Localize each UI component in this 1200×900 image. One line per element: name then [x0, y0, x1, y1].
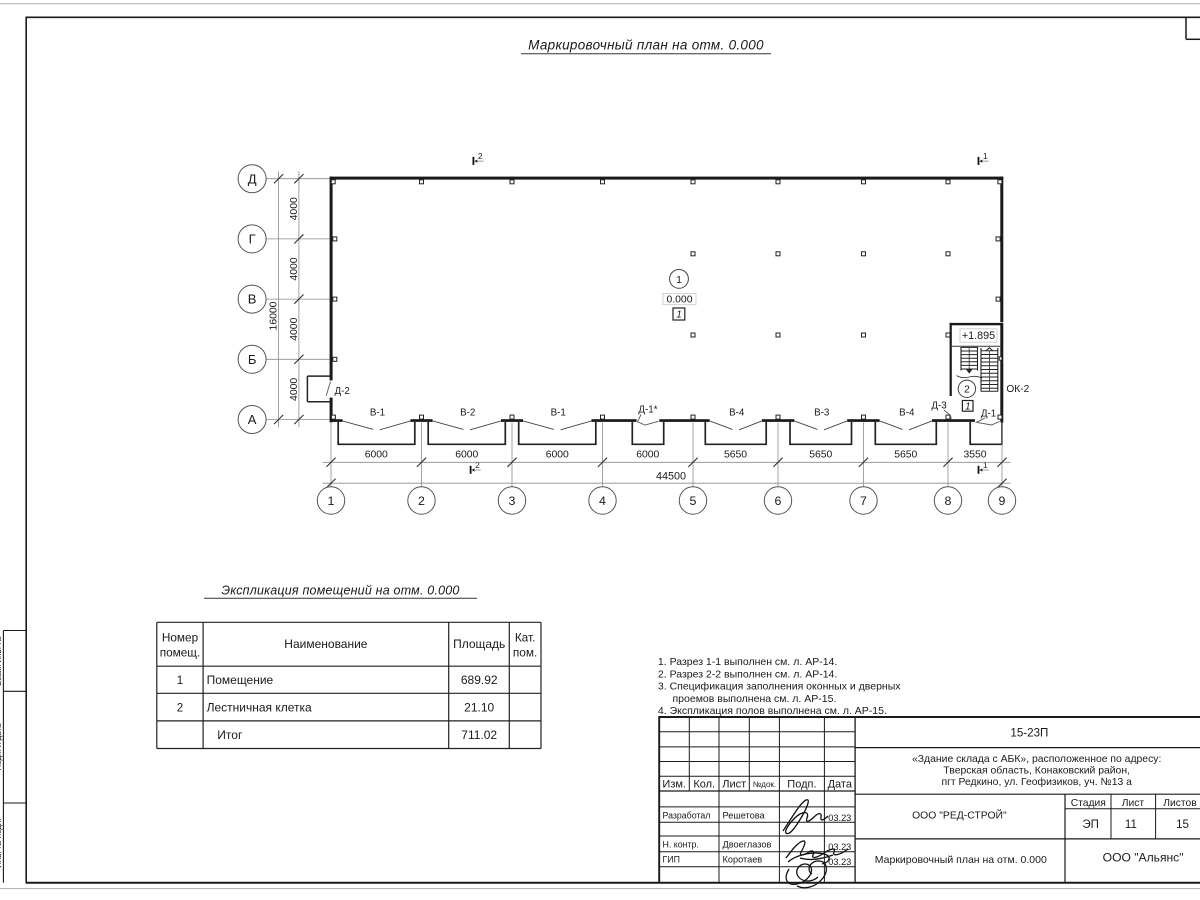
svg-text:689.92: 689.92: [461, 673, 498, 687]
svg-text:3: 3: [509, 494, 516, 508]
svg-text:помещ.: помещ.: [160, 646, 201, 660]
svg-text:В-3: В-3: [814, 408, 830, 419]
svg-text:Лестничная клетка: Лестничная клетка: [207, 701, 312, 715]
svg-text:4000: 4000: [289, 257, 300, 280]
svg-text:пом.: пом.: [513, 646, 537, 660]
svg-text:Маркировочный план на отм. 0.0: Маркировочный план на отм. 0.000: [875, 854, 1047, 866]
svg-text:15: 15: [1176, 819, 1189, 831]
svg-text:ГИП: ГИП: [663, 855, 680, 865]
svg-text:Д-1*: Д-1*: [638, 405, 657, 416]
svg-text:16000: 16000: [269, 301, 280, 330]
svg-text:6000: 6000: [455, 450, 478, 461]
svg-text:4000: 4000: [289, 378, 300, 401]
svg-text:4000: 4000: [289, 317, 300, 340]
svg-text:В-4: В-4: [729, 408, 745, 419]
svg-text:Инв. № подл.: Инв. № подл.: [0, 818, 3, 868]
svg-text:Площадь: Площадь: [453, 637, 505, 651]
svg-text:Н. контр.: Н. контр.: [663, 840, 699, 850]
svg-text:1: 1: [983, 151, 988, 161]
svg-text:Экспликация помещений на отм.: Экспликация помещений на отм. 0.000: [221, 584, 459, 598]
svg-text:03.23: 03.23: [828, 857, 851, 867]
svg-text:Кат.: Кат.: [515, 631, 536, 645]
svg-text:1: 1: [676, 310, 682, 321]
svg-text:5650: 5650: [809, 450, 832, 461]
svg-text:0.000: 0.000: [666, 294, 692, 305]
svg-text:2: 2: [964, 384, 970, 396]
svg-text:Г: Г: [249, 232, 256, 247]
svg-text:Маркировочный план на отм. 0.0: Маркировочный план на отм. 0.000: [528, 38, 764, 53]
svg-text:«Здание склада с АБК», располо: «Здание склада с АБК», расположенное по …: [912, 754, 1161, 765]
svg-text:Б: Б: [248, 352, 257, 367]
svg-text:2: 2: [418, 494, 425, 508]
svg-text:6000: 6000: [636, 450, 659, 461]
svg-text:Помещение: Помещение: [207, 673, 274, 687]
svg-text:9: 9: [999, 494, 1006, 508]
svg-text:1: 1: [983, 460, 988, 470]
svg-text:Решетова: Решетова: [723, 810, 766, 820]
svg-text:8: 8: [945, 494, 952, 508]
svg-text:2: 2: [475, 460, 480, 470]
svg-text:пгт Редкино, ул. Геофизиков, у: пгт Редкино, ул. Геофизиков, уч. №13 а: [941, 776, 1132, 788]
svg-text:ОК-2: ОК-2: [1006, 384, 1029, 395]
svg-text:В-4: В-4: [899, 408, 915, 419]
svg-text:Наименование: Наименование: [284, 637, 368, 651]
svg-text:1: 1: [328, 494, 335, 508]
svg-text:Подп. и дата: Подп. и дата: [0, 723, 3, 771]
svg-text:Лист: Лист: [722, 779, 746, 791]
svg-text:Изм.: Изм.: [662, 779, 686, 791]
svg-text:Листов: Листов: [1163, 798, 1197, 809]
svg-text:Тверская область, Конаковский: Тверская область, Конаковский район,: [943, 765, 1130, 777]
svg-text:03.23: 03.23: [828, 842, 851, 852]
svg-text:Д-1: Д-1: [981, 408, 996, 419]
svg-text:4000: 4000: [289, 197, 300, 220]
svg-text:проемов выполнена см. л. АР-15: проемов выполнена см. л. АР-15.: [673, 693, 837, 705]
svg-text:А: А: [248, 412, 257, 427]
svg-text:2: 2: [478, 151, 483, 161]
svg-text:В-2: В-2: [460, 408, 475, 419]
svg-text:21.10: 21.10: [464, 701, 494, 715]
svg-text:Двоеглазов: Двоеглазов: [723, 840, 772, 850]
svg-text:Кол.: Кол.: [693, 779, 715, 791]
svg-text:5650: 5650: [894, 450, 917, 461]
svg-text:Д-2: Д-2: [335, 386, 350, 397]
svg-text:7: 7: [860, 494, 867, 508]
svg-text:3. Спецификация заполнения око: 3. Спецификация заполнения оконных и две…: [658, 681, 901, 693]
svg-text:Коротаев: Коротаев: [723, 855, 763, 865]
svg-text:В: В: [248, 292, 257, 307]
svg-text:Д: Д: [248, 171, 257, 186]
svg-text:4: 4: [599, 494, 606, 508]
svg-text:Подп.: Подп.: [787, 779, 816, 791]
svg-text:1: 1: [177, 675, 183, 687]
svg-text:ЭП: ЭП: [1082, 819, 1099, 831]
svg-text:6000: 6000: [546, 450, 569, 461]
svg-text:Взам. инв. №: Взам. инв. №: [0, 636, 3, 686]
svg-text:Дата: Дата: [828, 779, 853, 791]
svg-text:ООО "РЕД-СТРОЙ": ООО "РЕД-СТРОЙ": [912, 809, 1007, 822]
svg-text:1: 1: [965, 401, 971, 412]
svg-text:3550: 3550: [963, 450, 986, 461]
svg-text:6: 6: [775, 494, 782, 508]
svg-text:03.23: 03.23: [828, 813, 851, 823]
svg-text:1: 1: [676, 274, 682, 286]
svg-text:6000: 6000: [365, 450, 388, 461]
svg-text:Стадия: Стадия: [1071, 798, 1106, 809]
svg-text:4. Экспликация полов выполнена: 4. Экспликация полов выполнена см. л. АР…: [658, 705, 887, 717]
svg-text:711.02: 711.02: [461, 728, 497, 742]
svg-text:В-1: В-1: [551, 408, 566, 419]
svg-text:11: 11: [1125, 819, 1137, 831]
svg-text:2: 2: [177, 703, 183, 715]
svg-text:В-1: В-1: [370, 408, 385, 419]
svg-text:Лист: Лист: [1122, 798, 1145, 809]
svg-text:№док.: №док.: [753, 780, 776, 789]
svg-text:15-23П: 15-23П: [1010, 726, 1048, 739]
svg-text:+1.895: +1.895: [962, 330, 995, 342]
svg-text:44500: 44500: [656, 470, 686, 482]
svg-text:1. Разрез 1-1 выполнен см. л.: 1. Разрез 1-1 выполнен см. л. АР-14.: [658, 656, 837, 668]
svg-text:2. Разрез 2-2 выполнен см. л.: 2. Разрез 2-2 выполнен см. л. АР-14.: [658, 668, 837, 680]
svg-text:Итог: Итог: [217, 728, 243, 742]
svg-text:5650: 5650: [724, 450, 747, 461]
svg-text:Разработал: Разработал: [663, 810, 711, 820]
svg-text:5: 5: [690, 494, 697, 508]
svg-text:Номер: Номер: [162, 631, 199, 645]
svg-text:Д-3: Д-3: [931, 400, 947, 411]
svg-text:ООО "Альянс": ООО "Альянс": [1103, 851, 1184, 865]
